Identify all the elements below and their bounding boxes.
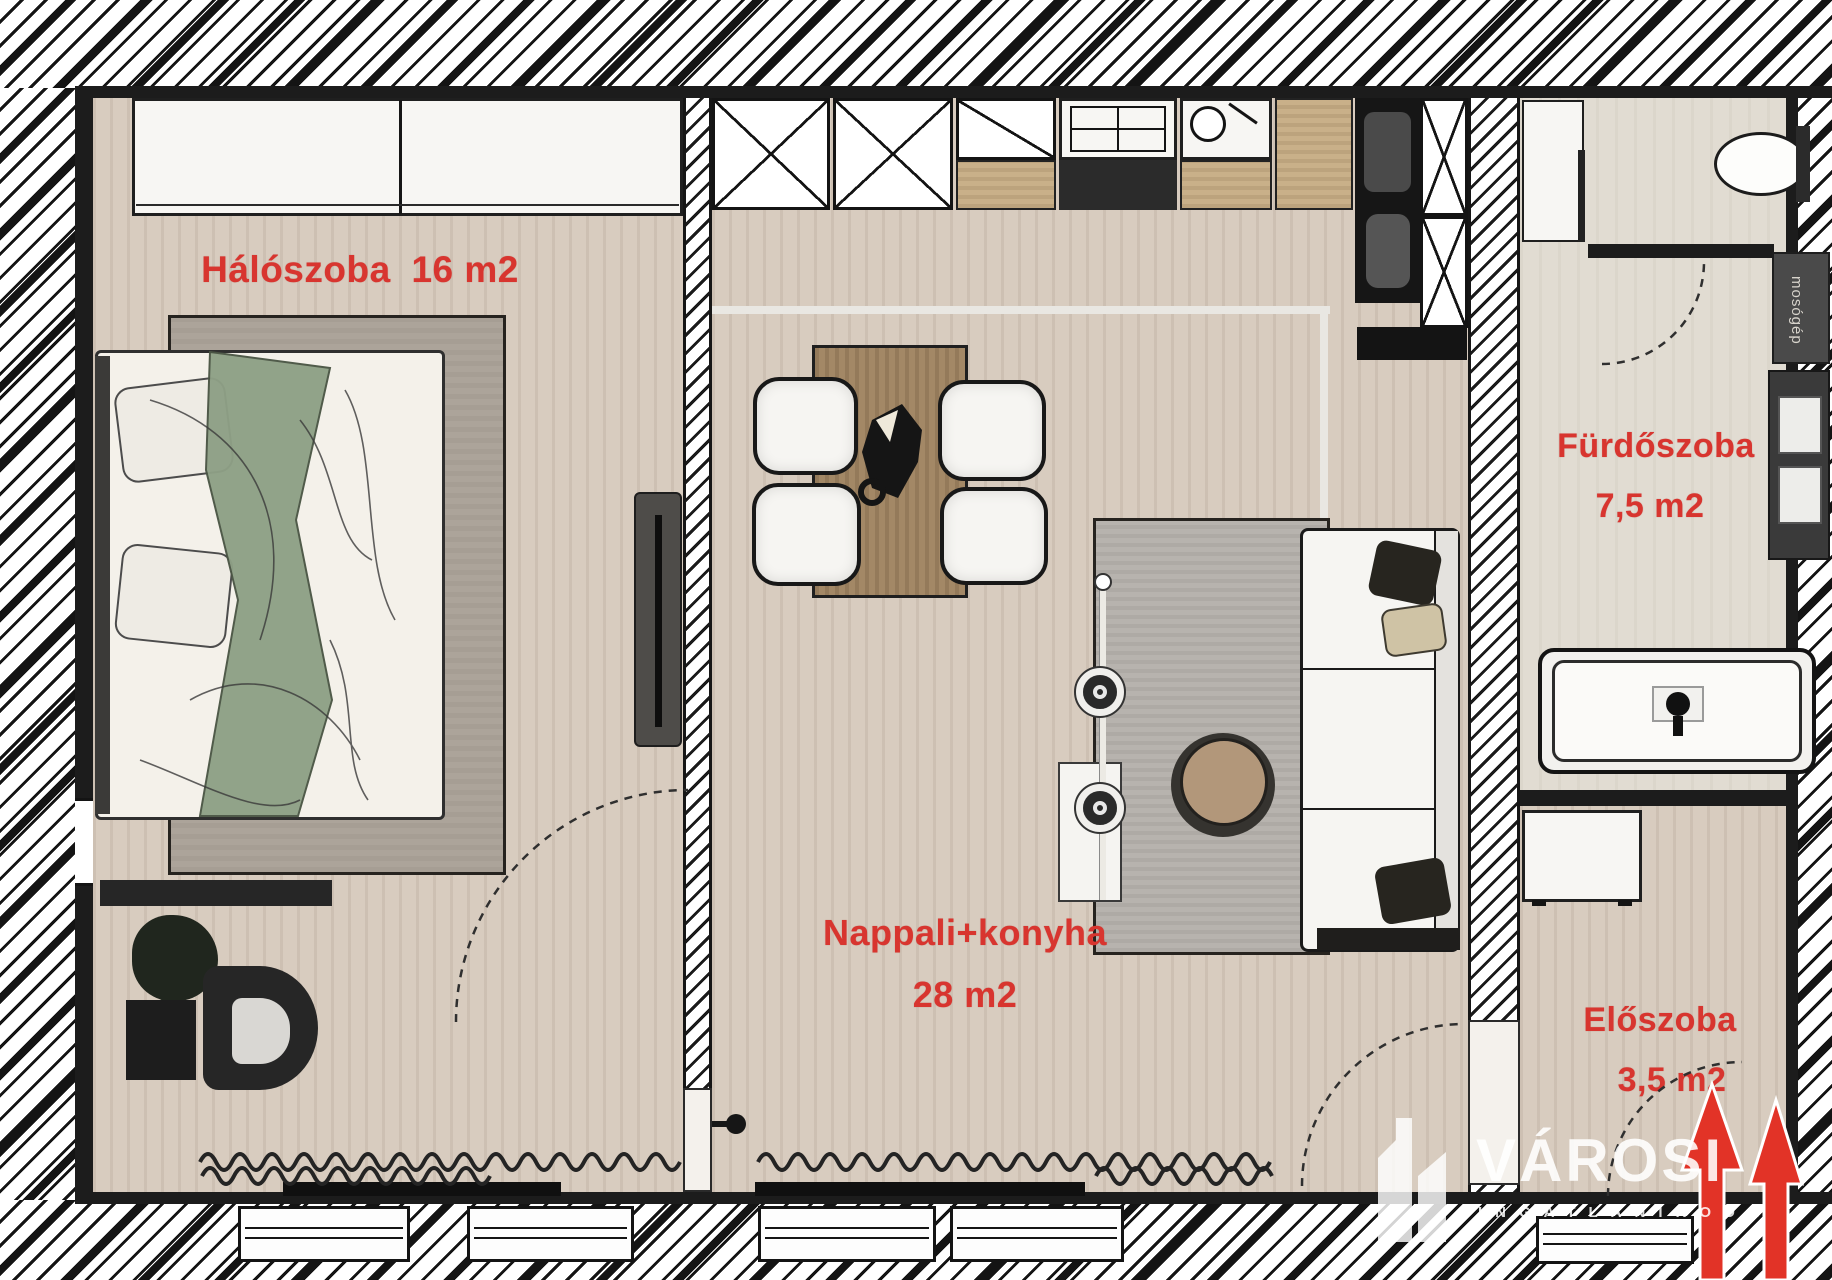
living-threshold xyxy=(755,1182,1085,1196)
bathtub-drain-cap xyxy=(1666,692,1690,716)
bedroom-wardrobe xyxy=(132,98,683,216)
dining-chair xyxy=(940,487,1048,585)
exterior-hatch-left xyxy=(0,88,75,1280)
coffee-table-top xyxy=(1180,738,1268,826)
sink-basin xyxy=(1190,106,1226,142)
floor-plan: mosógép Hálószoba 16 m2 Nappali+konyha 2… xyxy=(0,0,1832,1280)
kitchen-counter xyxy=(1180,160,1272,210)
kitchen-cabinet-tall xyxy=(712,98,830,210)
kitchen-side-cabinet xyxy=(1420,216,1468,328)
bedroom-side-window xyxy=(75,798,93,886)
sofa-cushion-line xyxy=(1303,808,1435,810)
window-symbol xyxy=(1536,1216,1694,1264)
sofa-cushion-line xyxy=(1303,668,1435,670)
wall-left xyxy=(75,86,93,1204)
hall-console xyxy=(1522,810,1642,902)
wall-bedroom-living xyxy=(683,98,712,1192)
kitchen-cabinet-tall xyxy=(833,98,953,210)
wall-top xyxy=(75,86,1832,98)
bathtub-drain-stem xyxy=(1673,716,1683,736)
watermark-subtitle: INGATLANIRODA xyxy=(1478,1204,1772,1221)
bed-pillow xyxy=(113,376,236,485)
living-label-name: Nappali+konyha xyxy=(770,913,1160,953)
kitchen-counter-dark xyxy=(1059,160,1177,210)
hall-console-foot xyxy=(1532,900,1546,906)
curtain-track xyxy=(712,306,1330,314)
bedroom-threshold xyxy=(283,1182,561,1196)
stove-burner-grid xyxy=(1070,106,1166,152)
door-leaf-bedroom xyxy=(683,1088,712,1192)
kitchen-side-dark xyxy=(1357,327,1467,360)
kitchen-counter xyxy=(956,160,1056,210)
washing-machine: mosógép xyxy=(1772,252,1830,364)
toilet-symbol xyxy=(1714,132,1808,196)
hall-console-foot xyxy=(1618,900,1632,906)
bedroom-label-area: 16 m2 xyxy=(411,249,518,290)
shower-cabinet xyxy=(1522,100,1584,242)
bathroom-label-area: 7,5 m2 xyxy=(1514,488,1786,525)
bedroom-desk xyxy=(126,1000,196,1080)
sofa-pillow xyxy=(1373,856,1452,925)
shower-cabinet-edge xyxy=(1578,150,1585,242)
hall-label-area: 3,5 m2 xyxy=(1540,1062,1804,1099)
speaker-cone xyxy=(1083,791,1117,825)
sofa-pillow xyxy=(1380,602,1448,658)
watermark-brand: VÁROSI xyxy=(1476,1126,1724,1195)
window-symbol xyxy=(238,1206,410,1262)
tv-screen xyxy=(1099,585,1106,900)
toilet-tank xyxy=(1796,126,1810,202)
bed-headboard xyxy=(95,356,110,814)
window-symbol xyxy=(758,1206,936,1262)
exterior-hatch-top xyxy=(0,0,1832,88)
speaker-cone xyxy=(1083,675,1117,709)
kitchen-side-cabinet xyxy=(1420,98,1468,216)
bed-pillow xyxy=(113,542,234,649)
window-symbol xyxy=(950,1206,1124,1262)
bedroom-label: Hálószoba 16 m2 xyxy=(140,250,580,291)
bedroom-shelf xyxy=(100,880,332,906)
washing-machine-label: mosógép xyxy=(1788,260,1805,360)
dining-chair xyxy=(938,380,1046,481)
desk-chair-seat xyxy=(232,998,290,1064)
bedroom-wardrobe-divider xyxy=(399,100,402,214)
living-label-area: 28 m2 xyxy=(770,975,1160,1015)
wall-bathroom-hall xyxy=(1520,790,1798,806)
hall-label-name: Előszoba xyxy=(1528,1002,1792,1039)
bedroom-tv-screen xyxy=(655,515,662,727)
kitchen-counter xyxy=(1275,98,1353,210)
bathroom-label-name: Fürdőszoba xyxy=(1520,428,1792,465)
oven-interior xyxy=(1366,214,1410,288)
bathroom-partition xyxy=(1588,244,1774,258)
bedroom-wardrobe-rail xyxy=(136,204,679,206)
bedroom-label-name: Hálószoba xyxy=(201,249,391,290)
dining-chair xyxy=(753,377,858,475)
dining-chair xyxy=(752,483,861,586)
sofa-frame-bottom xyxy=(1317,928,1460,950)
kitchen-cabinet xyxy=(956,98,1056,160)
fridge-interior xyxy=(1364,112,1411,192)
window-symbol xyxy=(467,1206,634,1262)
